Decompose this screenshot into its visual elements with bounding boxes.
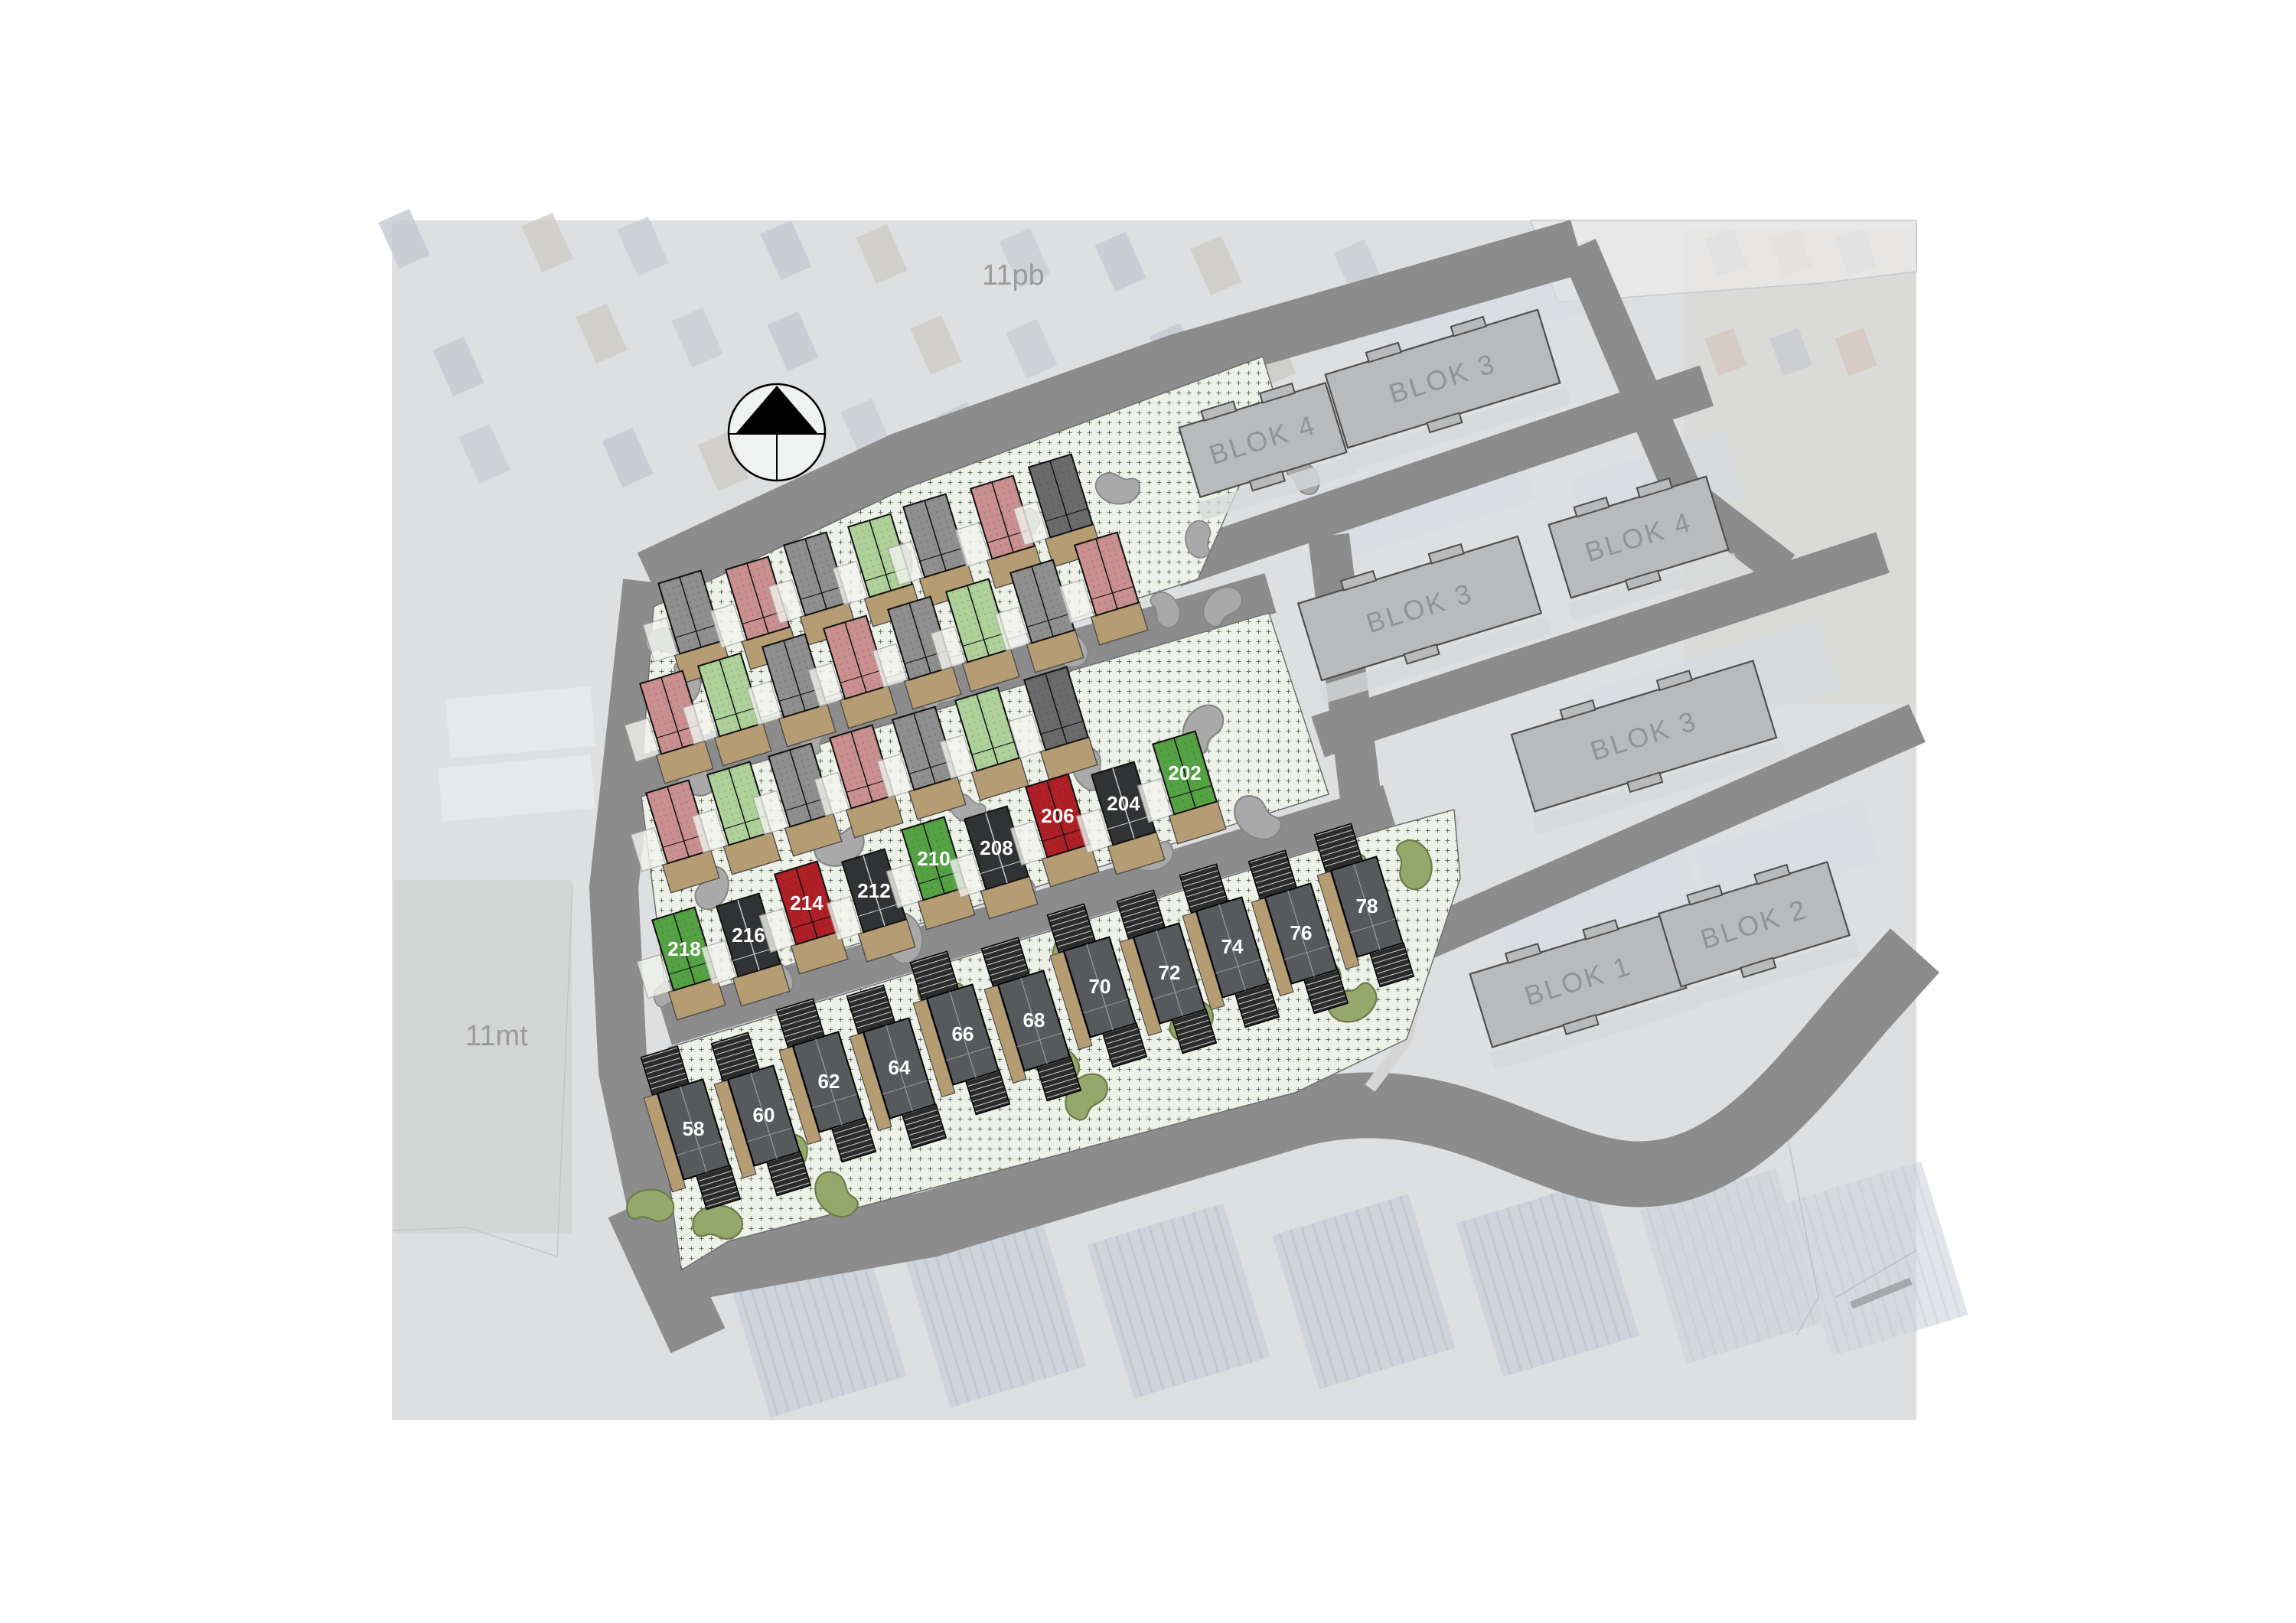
house-number-218: 218 <box>667 937 700 960</box>
house-number-58: 58 <box>683 1117 705 1140</box>
house-number-212: 212 <box>857 879 890 902</box>
house-number-210: 210 <box>917 847 950 870</box>
house-number-208: 208 <box>980 836 1013 859</box>
house-number-72: 72 <box>1159 961 1181 984</box>
house-number-202: 202 <box>1168 761 1201 784</box>
house-number-64: 64 <box>889 1056 911 1079</box>
site-plan-map: BLOK 4BLOK 3BLOK 3BLOK 4BLOK 3BLOK 1BLOK… <box>0 0 2296 1623</box>
house-number-74: 74 <box>1221 935 1244 958</box>
green-shrub <box>693 1205 742 1239</box>
house-number-60: 60 <box>753 1103 775 1126</box>
house-number-70: 70 <box>1089 975 1111 998</box>
site-plan-page: BLOK 4BLOK 3BLOK 3BLOK 4BLOK 3BLOK 1BLOK… <box>0 0 2296 1623</box>
house-number-206: 206 <box>1041 804 1074 827</box>
house-number-76: 76 <box>1290 921 1313 944</box>
house-number-62: 62 <box>818 1070 840 1093</box>
house-number-66: 66 <box>952 1022 974 1045</box>
house-number-216: 216 <box>732 924 765 947</box>
house-number-204: 204 <box>1107 792 1140 815</box>
house-number-78: 78 <box>1356 895 1378 917</box>
house-number-68: 68 <box>1023 1009 1045 1031</box>
green-shrub <box>627 1190 673 1221</box>
area-label-11mt: 11mt <box>465 1020 528 1052</box>
house-number-214: 214 <box>790 891 823 914</box>
area-label-11pb: 11pb <box>982 259 1045 292</box>
north-arrow-icon <box>729 384 825 481</box>
